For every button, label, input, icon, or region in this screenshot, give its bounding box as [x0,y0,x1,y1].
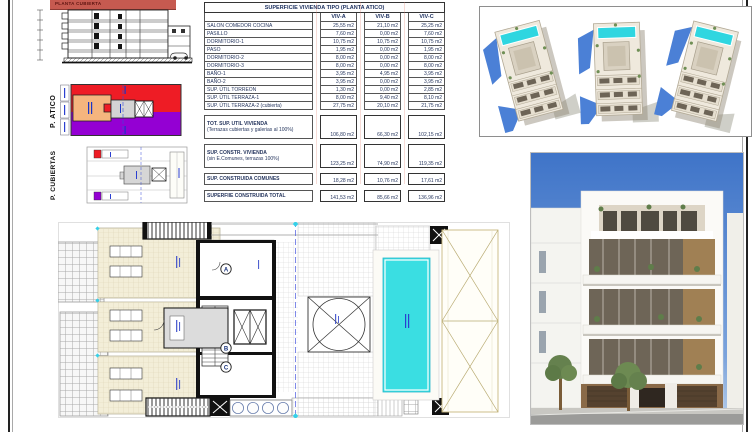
mini-plan-cubiertas [86,146,188,209]
elevator [234,310,266,344]
facade-render [530,152,744,425]
table-row: PASO1,95 m20,00 m21,95 m2 [205,46,445,54]
elevator [135,101,153,117]
plan-sheet: PLANTA CUBIERTA [0,0,756,432]
torreon-skylight [308,297,370,352]
aerial-render-1 [480,16,581,133]
section-elevation-drawing [34,8,196,68]
table-row: SUP. ÚTIL TORREON1,30 m20,00 m22,85 m2 [205,86,445,94]
ground-hatch [64,58,192,62]
table-title-row: SUPERFICIE VIVIENDA TIPO (PLANTA ATICO) [205,3,445,13]
table-row: DORMITORIO-28,00 m20,00 m28,00 m2 [205,54,445,62]
table-row: SUP. ÚTIL TERRAZA-2 (cubierta)27,75 m220… [205,102,445,110]
floor-plan-atico: A B C [58,222,510,423]
street [531,414,743,424]
open-bay [442,230,498,412]
table-row: PASILLO7,60 m20,00 m27,60 m2 [205,30,445,38]
page-border-left-inner [12,0,13,432]
apartment-marker-c: C [224,365,229,371]
apartment-marker-b: B [224,346,229,352]
ground-floor [581,384,723,408]
table-title: SUPERFICIE VIVIENDA TIPO (PLANTA ATICO) [205,3,445,13]
summary-row-util: TOT. SUP. UTIL VIVIENDA(Terrazas cubiert… [205,116,445,139]
table-row: BAÑO-23,95 m20,00 m23,95 m2 [205,78,445,86]
table-row: DORMITORIO-38,00 m20,00 m28,00 m2 [205,62,445,70]
atico-plan-label: P. ATICO [50,86,57,136]
surface-table: SUPERFICIE VIVIENDA TIPO (PLANTA ATICO) … [204,2,448,202]
cubiertas-plan-label: P. CUBIERTAS [50,146,57,204]
apartment-marker-a: A [224,267,229,273]
section-elevation [34,8,196,73]
section-title: PLANTA CUBIERTA [50,0,176,8]
table-row: SALON COMEDOR COCINA25,55 m221,10 m225,2… [205,22,445,30]
page-border-left [8,0,10,432]
balcony-levels [583,239,721,384]
col-viv-c: VIV-C [409,13,445,22]
table-row: DORMITORIO-110,75 m210,75 m210,75 m2 [205,38,445,46]
summary-row-constr: SUP. CONSTR. VIVIENDA(sin E.Comunes, ter… [205,145,445,168]
aerial-renders-box [479,6,752,137]
col-viv-b: VIV-B [365,13,401,22]
elevator [152,168,166,181]
mini-plan-atico [60,84,186,141]
table-header-row: VIV-A VIV-B VIV-C [205,13,445,22]
aerial-render-3 [654,17,749,133]
pool [373,250,439,400]
table-row: SUP. ÚTIL TERRAZA-18,00 m29,40 m28,10 m2 [205,94,445,102]
col-viv-a: VIV-A [321,13,357,22]
summary-row-total: SUPERFIIE CONSTRUIDA TOTAL 141,53 m2 85,… [205,191,445,202]
aerial-renders [480,7,749,134]
summary-row-comunes: SUP. CONSTRUIDA COMUNES 18,28 m2 10,76 m… [205,174,445,185]
table-row: BAÑO-13,95 m24,95 m23,95 m2 [205,70,445,78]
aerial-render-2 [577,22,658,125]
